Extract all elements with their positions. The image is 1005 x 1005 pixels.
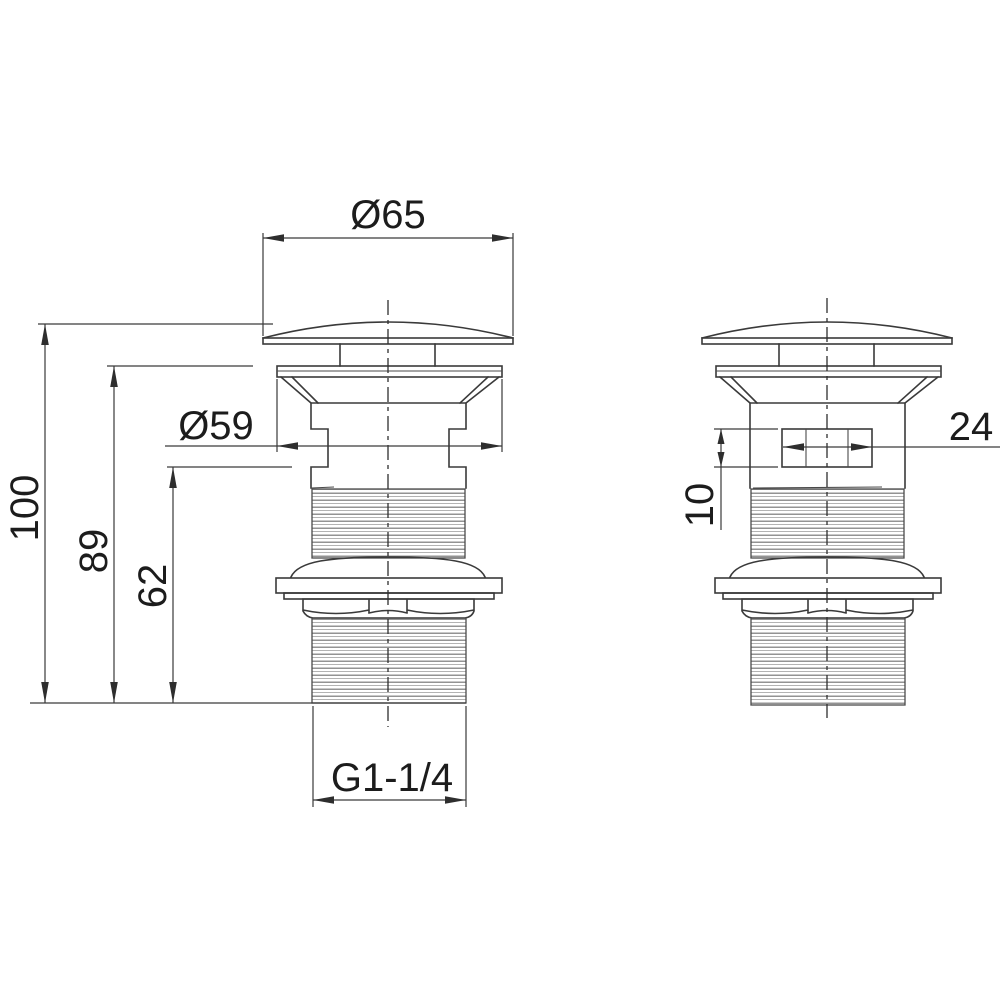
dim-label-height-to-overflow: 62 [131,564,175,609]
arrow-left-icon [277,442,298,450]
washer [723,593,933,599]
dim-overflow-width: 24 [783,405,1000,451]
backnut-flange [715,578,941,593]
backnut-flange [276,578,502,593]
dim-label-cap-diameter: Ø65 [350,193,426,237]
arrow-down-icon [110,682,118,703]
lower-thread [312,618,466,703]
arrow-up-icon [110,366,118,387]
arrow-up-icon [41,324,49,345]
dim-height-to-overflow: 62 [131,467,292,703]
arrow-right-icon [492,234,513,242]
thread-runout-line [753,487,882,488]
dim-label-flange-diameter: Ø59 [178,404,254,448]
left-view [263,300,513,727]
arrow-right-icon [851,443,872,451]
dim-label-height-below-cap: 89 [72,529,116,574]
dim-label-overflow-height: 10 [678,483,722,528]
cone-section [720,377,938,403]
arrow-left-icon [783,443,804,451]
arrow-down-icon [41,682,49,703]
arrow-up-icon [718,429,725,444]
thread-runout-line [311,487,334,488]
right-view [702,298,952,718]
dim-thread-size: G1-1/4 [313,706,466,807]
technical-drawing-page: Ø65 Ø59 100 89 62 G1-1/ [0,0,1005,1005]
basin-waste-drawing: Ø65 Ø59 100 89 62 G1-1/ [0,0,1005,1005]
extension-lines [714,429,778,467]
dim-label-thread-size: G1-1/4 [331,756,453,800]
arrow-down-icon [718,452,725,467]
arrow-up-icon [169,467,177,488]
cone-section [281,377,499,403]
dim-total-height: 100 [3,324,273,703]
arrow-left-icon [263,234,284,242]
arrow-down-icon [169,682,177,703]
arrow-right-icon [481,442,502,450]
lower-thread [751,618,905,705]
dim-label-overflow-width: 24 [949,405,994,449]
dim-label-total-height: 100 [3,475,47,542]
dim-flange-diameter: Ø59 [165,379,502,452]
washer [284,593,494,599]
